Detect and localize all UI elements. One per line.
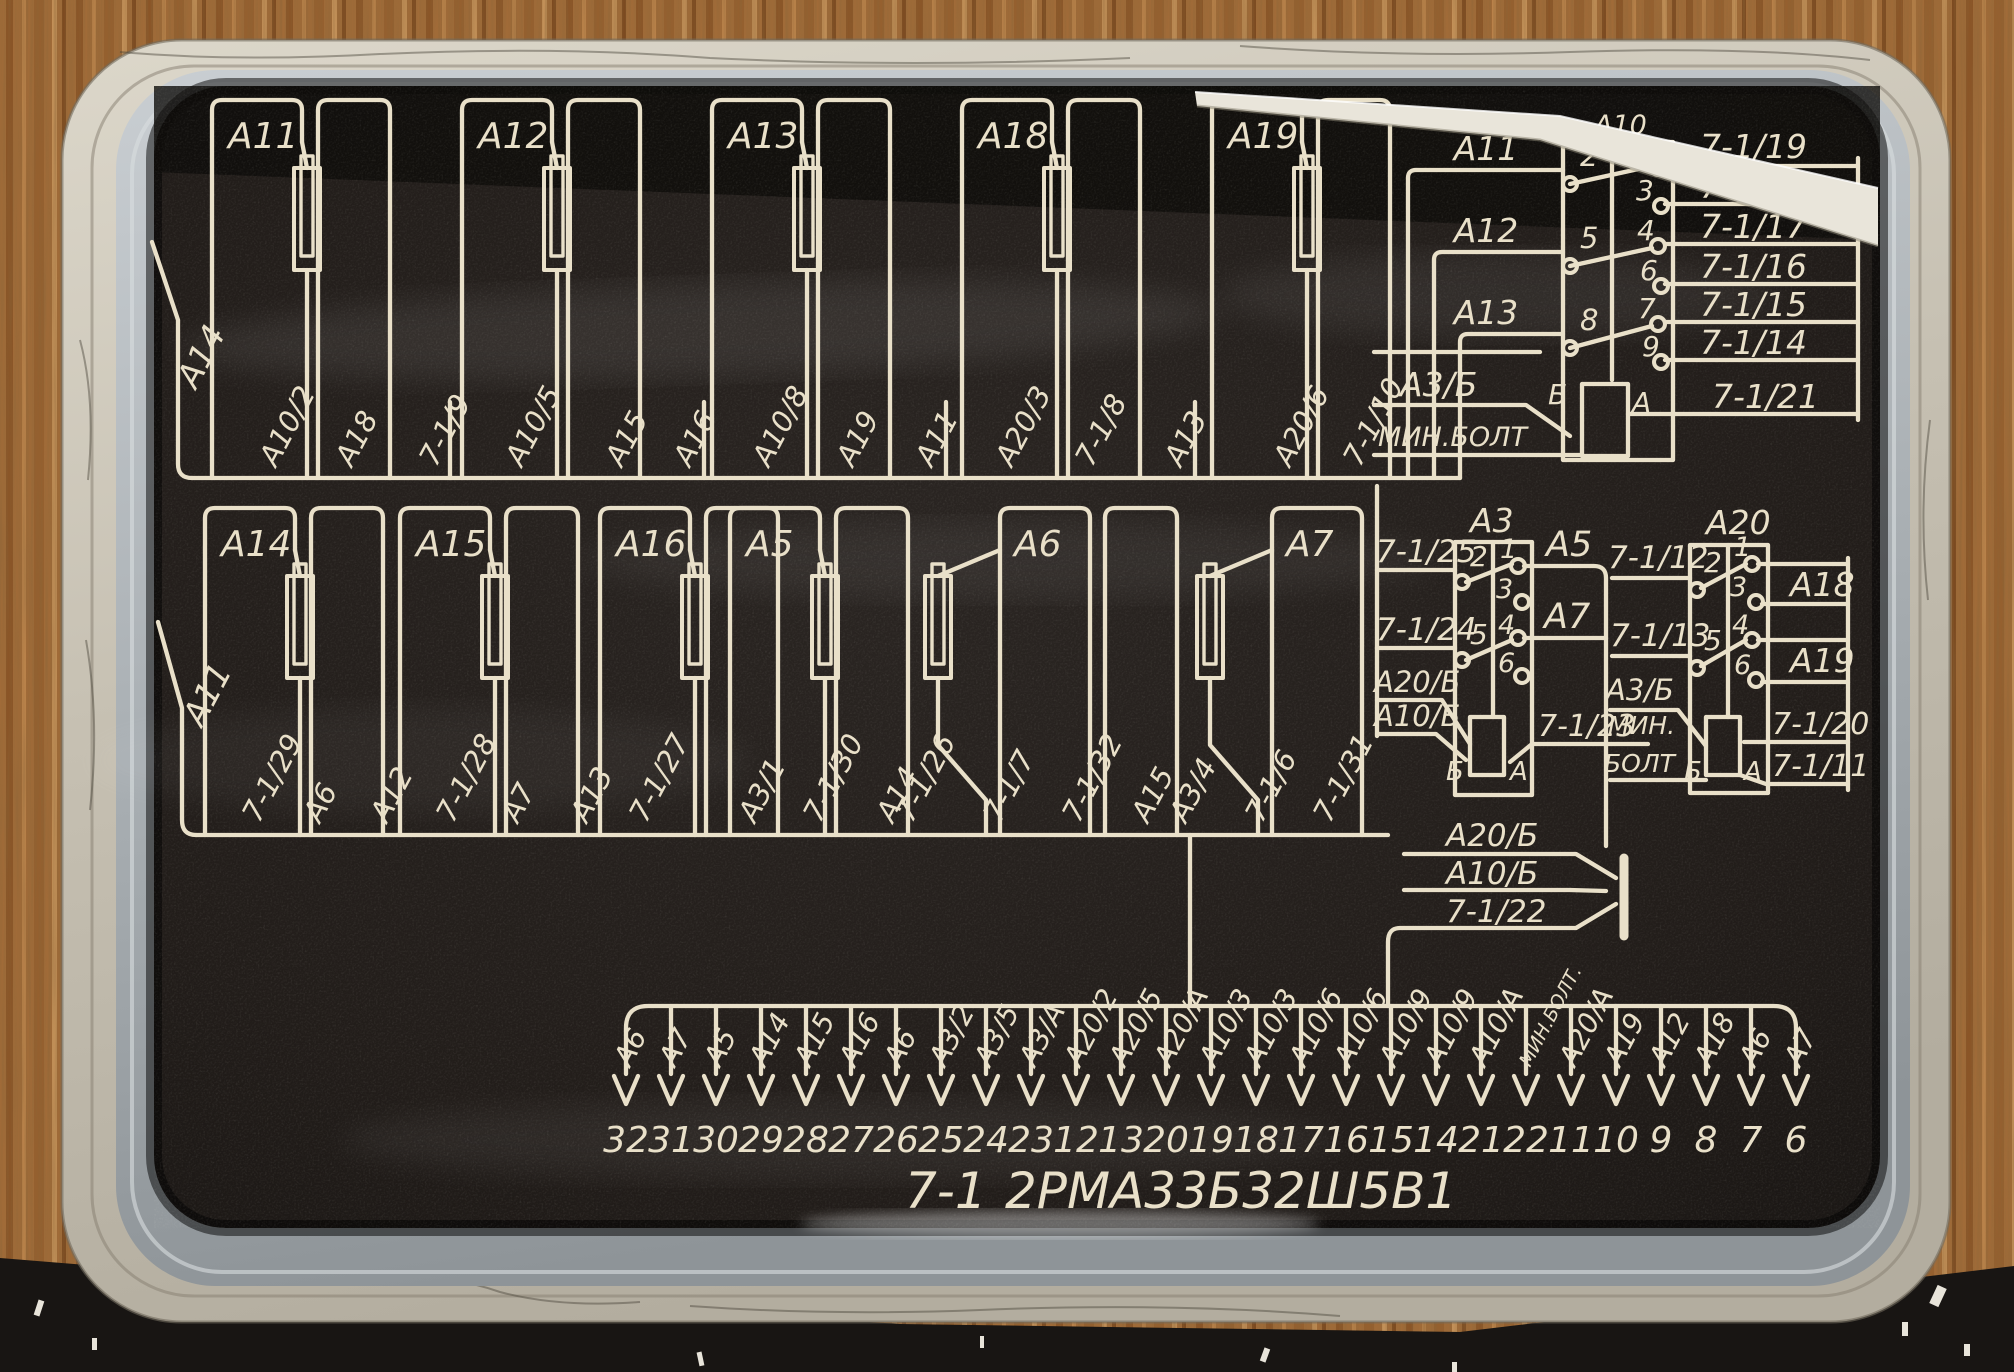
output-label: 7-1/20 xyxy=(1772,707,1869,742)
pin-number-label: 10 xyxy=(1593,1120,1639,1161)
pin-number-label: 18 xyxy=(1233,1120,1279,1161)
input-label: А20/Б xyxy=(1372,665,1460,699)
pin-number: 1 xyxy=(1734,532,1751,563)
pin-number: 2 xyxy=(1704,546,1722,579)
pin-number-label: 26 xyxy=(873,1120,919,1161)
input-label: А10/Б xyxy=(1372,699,1460,733)
input-label: А3/Б xyxy=(1398,365,1477,404)
input-label: МИН. xyxy=(1608,711,1675,740)
input-label: БОЛТ xyxy=(1604,749,1677,778)
pin-number-label: 9 xyxy=(1650,1120,1673,1161)
pin-number-label: 6 xyxy=(1785,1120,1808,1161)
pin-number-label: 17 xyxy=(1278,1120,1324,1161)
pin-number: 3 xyxy=(1730,572,1747,603)
pin-number: 3 xyxy=(1496,574,1513,605)
pin-number-label: 24 xyxy=(963,1120,1009,1161)
pin-number-label: 21 xyxy=(1458,1120,1504,1161)
fuse-name-label: А11 xyxy=(226,116,298,157)
pin-letter: Б xyxy=(1684,757,1702,787)
pin-number-label: 22 xyxy=(1503,1120,1549,1161)
input-label: МИН.БОЛТ xyxy=(1378,422,1529,453)
pin-number: 6 xyxy=(1640,254,1658,287)
pin-number-label: 12 xyxy=(1053,1120,1099,1161)
fuse-name-label: А13 xyxy=(726,116,798,157)
input-label: 7-1/12 xyxy=(1608,540,1709,576)
output-label: 7-1/16 xyxy=(1700,247,1807,286)
pin-number: 6 xyxy=(1498,648,1515,679)
pin-number-label: 13 xyxy=(1098,1120,1144,1161)
input-label: 7-1/25 xyxy=(1376,534,1477,570)
fuse-name-label: А7 xyxy=(1284,524,1334,565)
pin-number: 9 xyxy=(1642,330,1660,363)
pin-number-label: 29 xyxy=(738,1120,784,1161)
pin-number: 5 xyxy=(1704,624,1722,657)
fuse-box-lid-photo: А14А11А12А13А18А19А10/2А187-1/9А10/5А15А… xyxy=(0,0,2014,1372)
fuse-name-label: А6 xyxy=(1012,524,1062,565)
pin-number: 1 xyxy=(1500,534,1517,565)
output-label: А19 xyxy=(1788,641,1855,680)
output-label: 7-1/14 xyxy=(1700,323,1807,362)
fuse-name-label: А5 xyxy=(744,524,794,565)
output-label: 7-1/11 xyxy=(1772,749,1869,784)
output-label: 7-1/21 xyxy=(1712,377,1819,416)
connector-designation-prefix: 7-1 xyxy=(905,1162,987,1220)
pin-number: 5 xyxy=(1580,221,1598,255)
pin-number: 7 xyxy=(1638,292,1656,325)
pin-number-label: 11 xyxy=(1548,1120,1594,1161)
ground-wire-label: А10/Б xyxy=(1444,856,1538,892)
output-label: А5 xyxy=(1544,525,1592,565)
input-label: 7-1/13 xyxy=(1610,618,1711,654)
fuse-name-label: А14 xyxy=(219,524,291,565)
fuse-name-label: А18 xyxy=(976,116,1048,157)
pin-number: 4 xyxy=(1498,610,1515,641)
pin-number-label: 32 xyxy=(603,1120,649,1161)
pin-number-label: 25 xyxy=(918,1120,964,1161)
pin-number-label: 7 xyxy=(1740,1120,1763,1161)
pin-number-label: 16 xyxy=(1323,1120,1369,1161)
pin-number-label: 8 xyxy=(1695,1120,1718,1161)
pin-number: 8 xyxy=(1580,303,1598,337)
pin-number-label: 15 xyxy=(1368,1120,1414,1161)
pin-number-label: 27 xyxy=(828,1120,874,1161)
scene-svg: А14А11А12А13А18А19А10/2А187-1/9А10/5А15А… xyxy=(0,0,2014,1372)
ground-wire-label: 7-1/22 xyxy=(1446,894,1547,930)
pin-number-label: 28 xyxy=(783,1120,829,1161)
pin-number-label: 14 xyxy=(1413,1120,1459,1161)
pin-number: 3 xyxy=(1636,174,1654,207)
pin-number-label: 19 xyxy=(1188,1120,1234,1161)
pin-number: 2 xyxy=(1470,540,1488,573)
input-label: 7-1/24 xyxy=(1376,612,1477,648)
fuse-name-label: А16 xyxy=(614,524,686,565)
input-label: А13 xyxy=(1452,293,1519,332)
output-label: 7-1/15 xyxy=(1700,285,1807,324)
pin-number: 6 xyxy=(1734,650,1751,681)
pin-number: 4 xyxy=(1637,214,1655,247)
pin-number-label: 31 xyxy=(648,1120,694,1161)
output-label: А18 xyxy=(1788,565,1855,604)
pin-number-label: 23 xyxy=(1008,1120,1054,1161)
pin-letter: Б xyxy=(1446,757,1464,787)
input-label: А12 xyxy=(1452,211,1519,250)
pin-number-label: 30 xyxy=(693,1120,739,1161)
fuse-name-label: А12 xyxy=(476,116,548,157)
fuse-name-label: А19 xyxy=(1226,116,1298,157)
pin-letter: Б xyxy=(1548,378,1567,411)
pin-number: 4 xyxy=(1732,610,1749,641)
panel-scuff xyxy=(800,1211,1320,1237)
input-label: А3/Б xyxy=(1604,673,1674,707)
pin-number-label: 20 xyxy=(1143,1120,1189,1161)
fuse-name-label: А15 xyxy=(414,524,486,565)
ground-wire-label: А20/Б xyxy=(1444,818,1538,854)
pin-number: 5 xyxy=(1470,618,1488,651)
output-label: А7 xyxy=(1542,597,1590,637)
